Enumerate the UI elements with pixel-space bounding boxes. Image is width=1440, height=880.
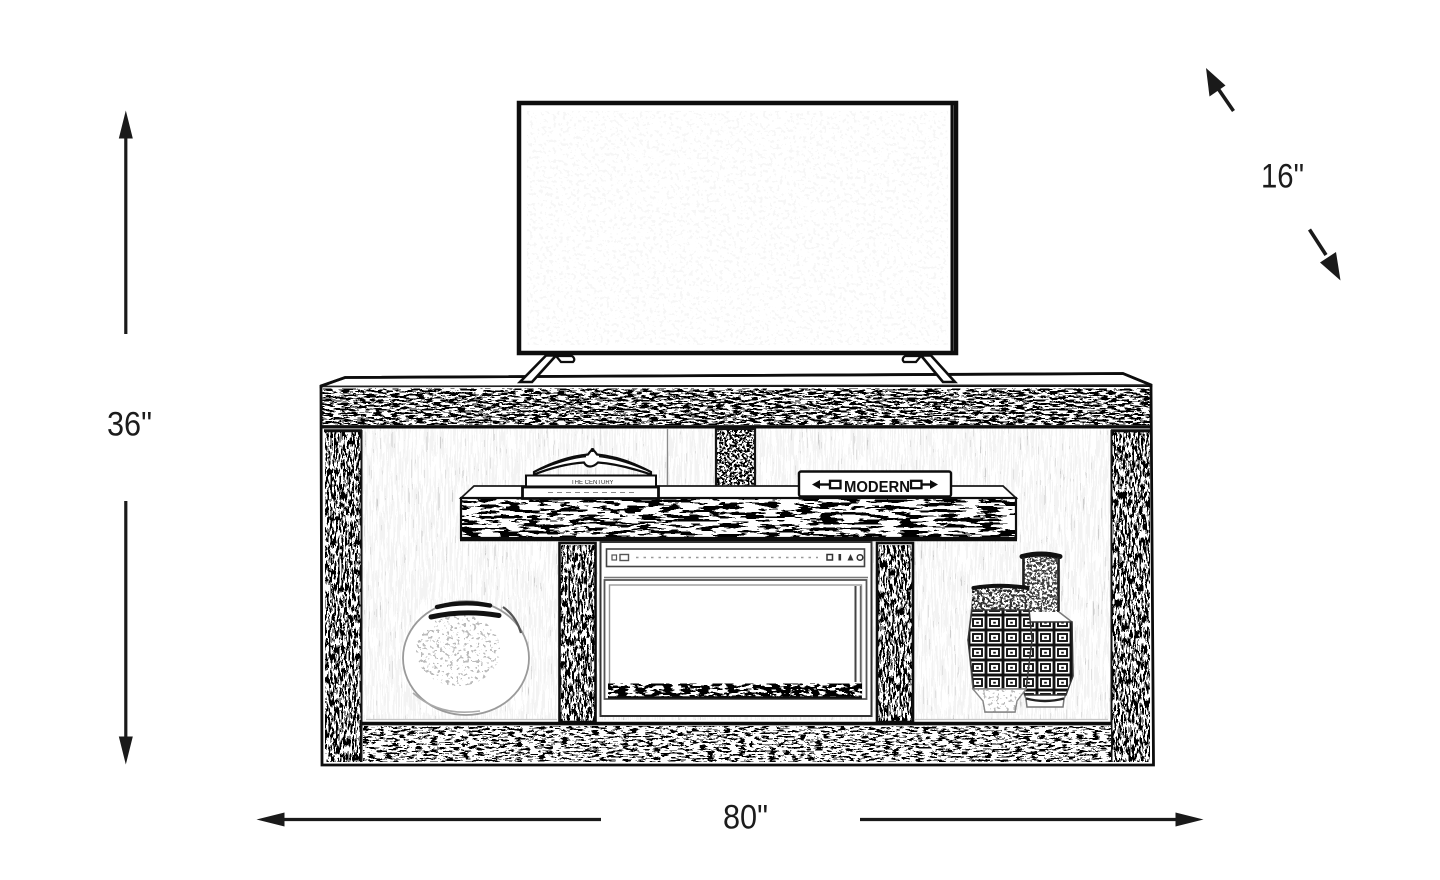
svg-text:THE CENTURY: THE CENTURY xyxy=(571,480,614,486)
svg-text:36": 36" xyxy=(107,406,152,444)
svg-text:16": 16" xyxy=(1261,158,1304,196)
svg-text:80": 80" xyxy=(723,799,768,837)
svg-text:MODERN: MODERN xyxy=(844,479,910,496)
